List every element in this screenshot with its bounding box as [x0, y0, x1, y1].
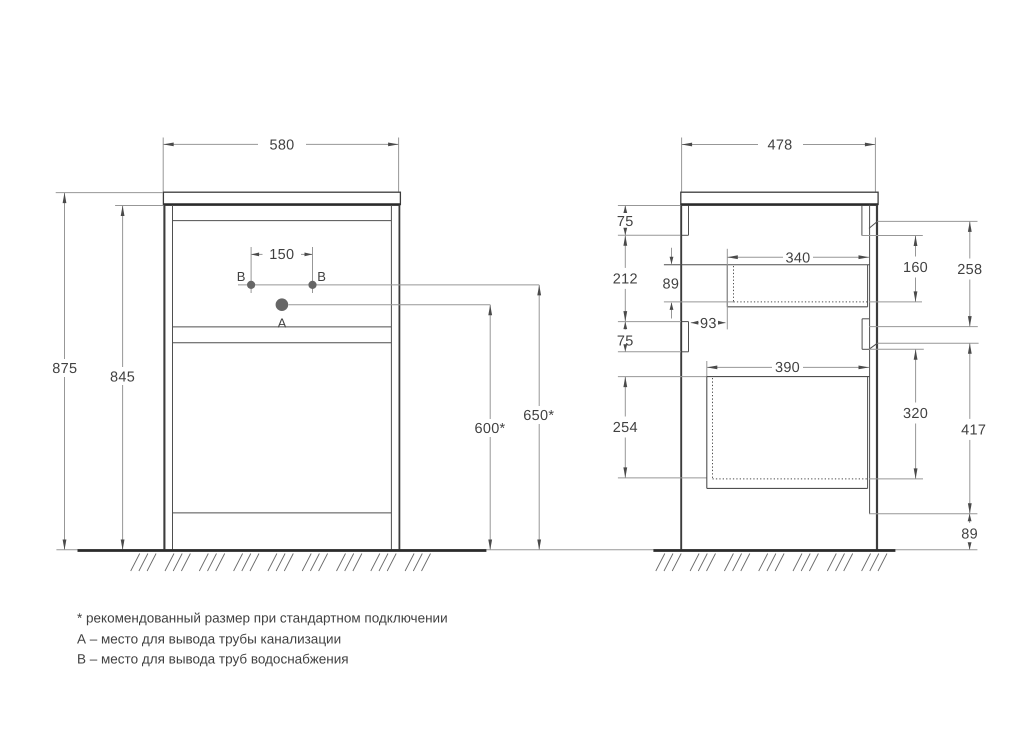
- svg-text:160: 160: [903, 260, 928, 276]
- svg-text:* рекомендованный размер при с: * рекомендованный размер при стандартном…: [77, 611, 448, 626]
- svg-text:150: 150: [269, 247, 294, 263]
- svg-text:258: 258: [957, 262, 982, 278]
- svg-text:650*: 650*: [523, 408, 554, 424]
- svg-text:75: 75: [617, 333, 634, 349]
- svg-text:89: 89: [961, 527, 978, 543]
- svg-text:340: 340: [785, 250, 810, 266]
- svg-text:254: 254: [613, 420, 638, 436]
- svg-text:212: 212: [613, 272, 638, 288]
- svg-text:89: 89: [663, 277, 680, 293]
- svg-text:320: 320: [903, 406, 928, 422]
- svg-text:390: 390: [775, 360, 800, 376]
- svg-text:В – место для вывода труб водо: В – место для вывода труб водоснабжения: [77, 652, 349, 667]
- svg-text:580: 580: [269, 137, 294, 153]
- svg-text:600*: 600*: [474, 421, 505, 437]
- svg-text:B: B: [237, 269, 246, 284]
- svg-text:75: 75: [617, 214, 634, 230]
- svg-text:845: 845: [110, 369, 135, 385]
- svg-text:B: B: [317, 269, 326, 284]
- svg-text:93: 93: [700, 316, 717, 332]
- svg-text:А – место для вывода трубы кан: А – место для вывода трубы канализации: [77, 632, 341, 647]
- svg-text:417: 417: [961, 423, 986, 439]
- svg-text:478: 478: [767, 138, 792, 154]
- svg-text:A: A: [278, 315, 287, 330]
- svg-text:875: 875: [52, 361, 77, 377]
